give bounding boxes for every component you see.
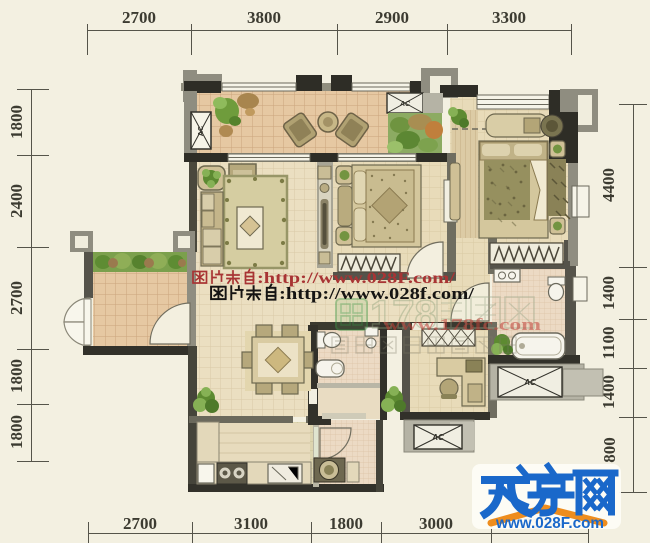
svg-text:www.178fc.com: www.178fc.com	[383, 315, 541, 334]
svg-text:www.028F.com: www.028F.com	[495, 515, 604, 532]
svg-text:2700: 2700	[7, 281, 26, 315]
svg-text:1800: 1800	[329, 514, 363, 533]
svg-text:1800: 1800	[7, 105, 26, 139]
svg-text:1400: 1400	[599, 276, 618, 310]
svg-text::http://www.028f.com/: :http://www.028f.com/	[279, 284, 474, 303]
svg-text:AC: AC	[523, 378, 536, 387]
svg-text:3800: 3800	[247, 8, 281, 27]
svg-text:4400: 4400	[599, 168, 618, 202]
svg-text:2700: 2700	[123, 514, 157, 533]
svg-text:2400: 2400	[7, 184, 26, 218]
svg-text:800: 800	[600, 437, 619, 463]
svg-text:3100: 3100	[234, 514, 268, 533]
svg-text:AC: AC	[198, 126, 205, 136]
svg-text:1800: 1800	[7, 359, 26, 393]
svg-text:AC: AC	[399, 101, 411, 108]
svg-text:2700: 2700	[122, 8, 156, 27]
svg-text:1800: 1800	[7, 415, 26, 449]
svg-text:2900: 2900	[375, 8, 409, 27]
svg-text:AC: AC	[431, 433, 444, 442]
svg-text:3000: 3000	[419, 514, 453, 533]
svg-text:1100: 1100	[599, 326, 618, 359]
svg-text:3300: 3300	[492, 8, 526, 27]
